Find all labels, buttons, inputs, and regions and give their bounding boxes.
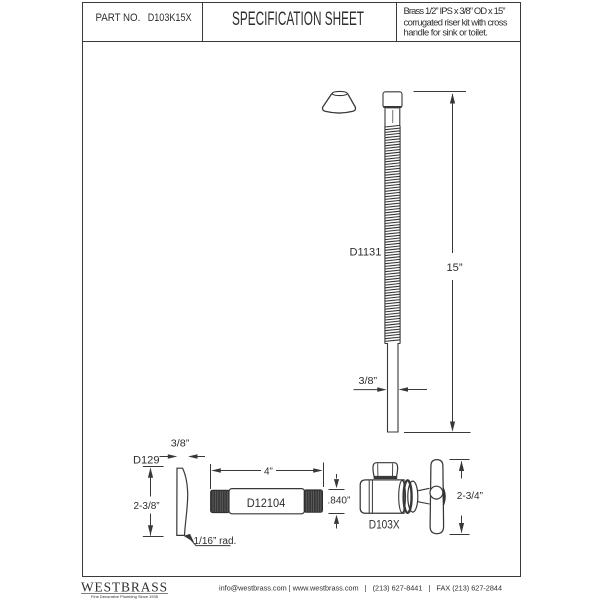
svg-text:Brass 1/2” IPS x 3/8” OD x 15”: Brass 1/2” IPS x 3/8” OD x 15” xyxy=(404,5,506,16)
svg-text:.840”: .840” xyxy=(328,496,351,507)
svg-text:SPECIFICATION SHEET: SPECIFICATION SHEET xyxy=(232,8,364,30)
svg-text:D103X: D103X xyxy=(369,519,400,532)
svg-text:D103K15X: D103K15X xyxy=(148,12,192,24)
svg-text:2-3/4”: 2-3/4” xyxy=(457,491,483,502)
svg-text:3/8”: 3/8” xyxy=(359,376,378,387)
svg-text:handle for sink or toilet.: handle for sink or toilet. xyxy=(404,26,489,37)
svg-text:PART NO.: PART NO. xyxy=(96,12,141,24)
svg-text:2-3/8”: 2-3/8” xyxy=(134,501,160,512)
svg-text:D12104: D12104 xyxy=(247,497,286,510)
svg-text:D129: D129 xyxy=(133,454,160,466)
svg-text:1/16” rad.: 1/16” rad. xyxy=(194,536,237,547)
svg-text:WESTBRASS: WESTBRASS xyxy=(81,580,168,595)
svg-text:4”: 4” xyxy=(264,466,273,477)
svg-text:15”: 15” xyxy=(447,262,463,274)
svg-text:Fine Decorative Plumbing Since: Fine Decorative Plumbing Since 1935 xyxy=(91,594,159,599)
svg-text:3/8”: 3/8” xyxy=(171,438,190,449)
svg-text:D1131: D1131 xyxy=(350,247,382,259)
svg-text:info@westbrass.com | www.westb: info@westbrass.com | www.westbrass.com |… xyxy=(219,585,502,592)
